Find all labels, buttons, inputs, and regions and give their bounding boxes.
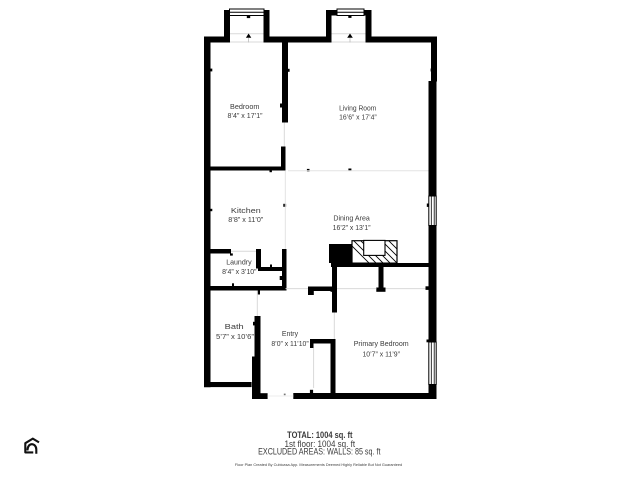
svg-text:16’2” x 13’1”: 16’2” x 13’1” bbox=[333, 223, 371, 232]
svg-text:Dining Area: Dining Area bbox=[333, 214, 370, 223]
svg-text:Entry: Entry bbox=[282, 329, 298, 338]
svg-text:Living Room: Living Room bbox=[339, 103, 376, 112]
svg-text:8’4” x 3’10”: 8’4” x 3’10” bbox=[222, 267, 257, 276]
svg-text:Laundry: Laundry bbox=[226, 257, 252, 266]
svg-text:Floor Plan Created By Cubicasa: Floor Plan Created By Cubicasa App. Meas… bbox=[235, 463, 402, 467]
svg-text:10’7” x 11’9”: 10’7” x 11’9” bbox=[362, 350, 400, 359]
svg-text:Primary Bedroom: Primary Bedroom bbox=[354, 339, 409, 348]
svg-text:8’0” x 11’10”: 8’0” x 11’10” bbox=[271, 339, 309, 348]
svg-text:Bedroom: Bedroom bbox=[230, 102, 259, 111]
svg-text:Bath: Bath bbox=[225, 322, 244, 331]
svg-text:Kitchen: Kitchen bbox=[231, 206, 261, 215]
svg-text:16’6” x 17’4”: 16’6” x 17’4” bbox=[339, 113, 377, 122]
svg-text:5’7” x 10’6”: 5’7” x 10’6” bbox=[216, 332, 254, 341]
svg-text:EXCLUDED AREAS: WALLS: 85 sq.: EXCLUDED AREAS: WALLS: 85 sq. ft bbox=[258, 447, 381, 457]
svg-text:8’4” x 17’1”: 8’4” x 17’1” bbox=[228, 111, 263, 120]
svg-text:8’8” x 11’0”: 8’8” x 11’0” bbox=[228, 215, 263, 224]
